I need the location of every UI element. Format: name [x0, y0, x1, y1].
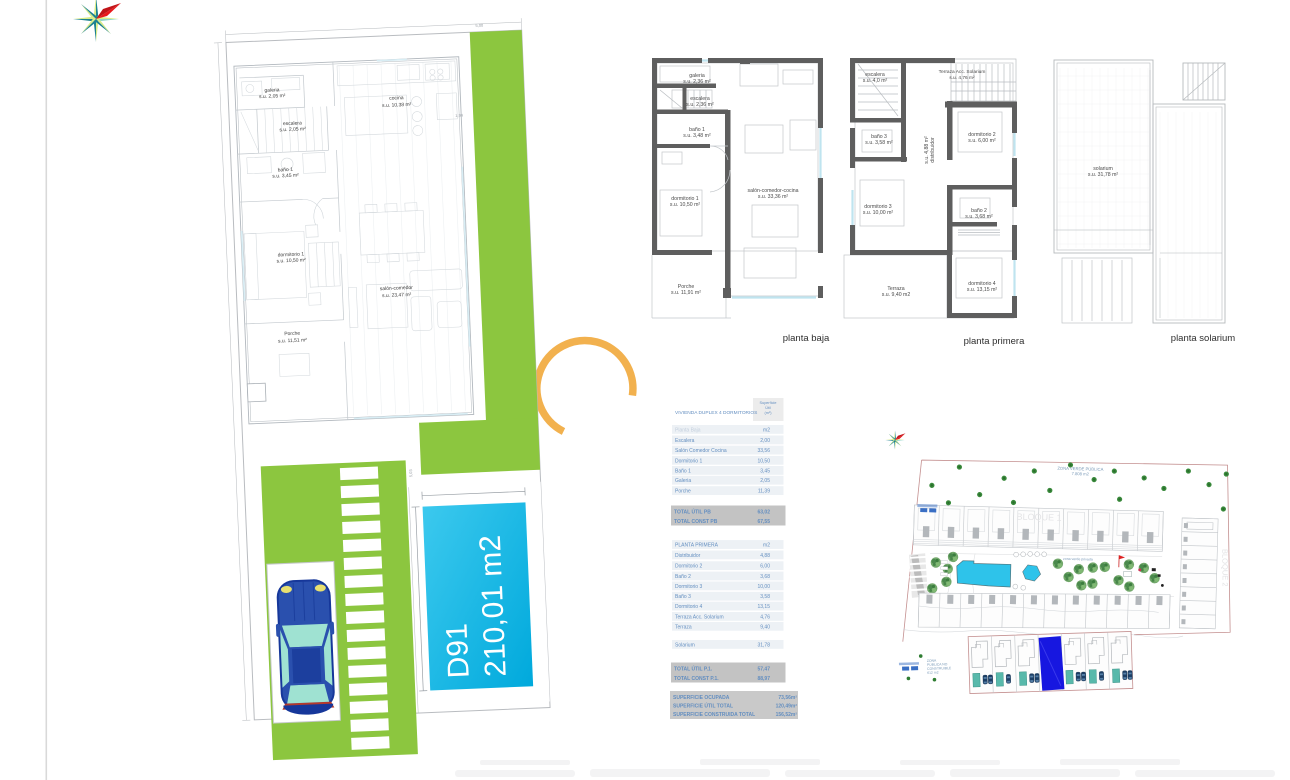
svg-text:zona verde privada: zona verde privada: [1063, 557, 1093, 562]
svg-text:s.u. 2,05 m²: s.u. 2,05 m²: [279, 126, 306, 133]
svg-text:4,76: 4,76: [760, 614, 770, 620]
svg-text:m2: m2: [763, 427, 770, 433]
svg-text:3,68: 3,68: [760, 574, 770, 580]
svg-text:BLOQUE 2: BLOQUE 2: [1220, 549, 1229, 587]
svg-text:s.u. 4,76 m²: s.u. 4,76 m²: [949, 75, 975, 81]
svg-text:88,97: 88,97: [757, 676, 770, 682]
svg-text:Dormitorio 3: Dormitorio 3: [675, 584, 702, 590]
svg-text:10,00: 10,00: [757, 584, 770, 590]
svg-text:s.u. 3,68 m²: s.u. 3,68 m²: [965, 214, 993, 220]
svg-text:67,55: 67,55: [757, 519, 770, 525]
svg-text:31,78: 31,78: [757, 642, 770, 648]
svg-text:33,56: 33,56: [757, 448, 770, 454]
svg-text:SUPERFICIE CONSTRUIDA TOTAL: SUPERFICIE CONSTRUIDA TOTAL: [673, 712, 755, 718]
svg-text:Terraza Acc. Solarium: Terraza Acc. Solarium: [675, 614, 724, 620]
svg-text:s.u. 2,36 m²: s.u. 2,36 m²: [683, 79, 711, 85]
svg-text:s.u. 9,40 m2: s.u. 9,40 m2: [882, 292, 911, 298]
svg-text:3,58: 3,58: [760, 594, 770, 600]
svg-text:Salón Comedor Cocina: Salón Comedor Cocina: [675, 448, 727, 454]
svg-text:s.u. 6,00 m²: s.u. 6,00 m²: [968, 138, 996, 144]
svg-text:m2: m2: [763, 543, 770, 549]
svg-text:1,94: 1,94: [455, 113, 464, 118]
svg-text:BLOQUE 1: BLOQUE 1: [1016, 512, 1061, 523]
svg-text:2,05: 2,05: [760, 478, 770, 484]
svg-text:Dormitorio 4: Dormitorio 4: [675, 604, 702, 610]
svg-text:s.u. 11,91 m²: s.u. 11,91 m²: [671, 290, 701, 296]
svg-text:s.u. 23,47 m²: s.u. 23,47 m²: [382, 292, 412, 299]
svg-text:120,49m²: 120,49m²: [776, 704, 798, 710]
svg-text:TOTAL CONST PB: TOTAL CONST PB: [674, 519, 718, 525]
svg-text:Dormitorio 1: Dormitorio 1: [675, 458, 702, 464]
svg-text:156,52m²: 156,52m²: [776, 712, 798, 718]
svg-text:Útil: Útil: [765, 405, 771, 410]
svg-text:planta solarium: planta solarium: [1171, 333, 1236, 344]
svg-text:s.u. 10,00 m²: s.u. 10,00 m²: [863, 210, 894, 216]
svg-text:Dormitorio 2: Dormitorio 2: [675, 564, 702, 570]
svg-text:Porche: Porche: [675, 489, 691, 495]
svg-text:9,40: 9,40: [760, 624, 770, 630]
svg-text:Galeria: Galeria: [675, 478, 691, 484]
svg-text:TOTAL ÚTIL P.1.: TOTAL ÚTIL P.1.: [674, 666, 713, 673]
svg-text:s.u. 4,0 m²: s.u. 4,0 m²: [863, 78, 888, 84]
svg-text:4,88: 4,88: [760, 553, 770, 559]
svg-text:VIVIENDA DUPLEX 4 DORMITORIOS: VIVIENDA DUPLEX 4 DORMITORIOS: [675, 410, 757, 416]
svg-text:13,15: 13,15: [757, 604, 770, 610]
svg-text:s.u. 10,50 m²: s.u. 10,50 m²: [276, 257, 306, 264]
svg-text:57,47: 57,47: [757, 667, 770, 673]
svg-text:73,56m²: 73,56m²: [778, 695, 797, 701]
svg-text:SUPERFICIE OCUPADA: SUPERFICIE OCUPADA: [673, 695, 730, 701]
svg-text:6,00: 6,00: [760, 564, 770, 570]
svg-text:s.u. 3,48 m²: s.u. 3,48 m²: [683, 133, 711, 139]
svg-text:Solarium: Solarium: [675, 642, 695, 648]
svg-text:Terraza Acc. Solarium: Terraza Acc. Solarium: [939, 69, 986, 75]
svg-text:s.u. 10,38 m²: s.u. 10,38 m²: [382, 102, 412, 109]
svg-text:210,01 m2: 210,01 m2: [474, 534, 513, 677]
svg-text:s.u. 2,05 m²: s.u. 2,05 m²: [259, 93, 286, 100]
svg-text:Baño 2: Baño 2: [675, 574, 691, 580]
svg-text:planta primera: planta primera: [964, 336, 1025, 347]
svg-text:planta baja: planta baja: [783, 333, 830, 344]
svg-text:PLANTA PRIMERA: PLANTA PRIMERA: [675, 543, 719, 549]
svg-text:s.u. 2,36 m²: s.u. 2,36 m²: [686, 102, 714, 108]
svg-text:10,50: 10,50: [757, 458, 770, 464]
svg-text:s.u. 3,58 m²: s.u. 3,58 m²: [865, 140, 893, 146]
svg-text:Planta Baja: Planta Baja: [675, 427, 701, 433]
svg-text:s.u. 31,78 m²: s.u. 31,78 m²: [1088, 172, 1119, 178]
svg-text:11,39: 11,39: [758, 489, 770, 495]
svg-text:3,45: 3,45: [760, 468, 770, 474]
svg-text:2,00: 2,00: [760, 438, 770, 444]
svg-text:(m²): (m²): [765, 411, 773, 415]
svg-text:5,00: 5,00: [475, 23, 484, 28]
svg-text:5,03: 5,03: [408, 468, 413, 477]
svg-text:Superficie: Superficie: [760, 401, 777, 405]
svg-text:TOTAL CONST P.1.: TOTAL CONST P.1.: [674, 676, 719, 682]
svg-text:Baño 1: Baño 1: [675, 468, 691, 474]
svg-text:s.u. 3,45 m²: s.u. 3,45 m²: [272, 173, 299, 180]
svg-text:D91: D91: [440, 623, 475, 679]
svg-text:s.u. 33,36 m²: s.u. 33,36 m²: [758, 194, 789, 200]
svg-text:s.u. 10,50 m²: s.u. 10,50 m²: [670, 202, 701, 208]
svg-text:Porche: Porche: [284, 331, 300, 338]
svg-text:7.808 m2: 7.808 m2: [1071, 471, 1089, 476]
svg-text:63,02: 63,02: [757, 510, 770, 516]
svg-text:Escalera: Escalera: [675, 438, 695, 444]
svg-text:612 m2: 612 m2: [927, 671, 939, 675]
svg-text:SUPERFICIE ÚTIL TOTAL: SUPERFICIE ÚTIL TOTAL: [673, 703, 733, 710]
svg-text:Distribuidor: Distribuidor: [675, 553, 701, 559]
svg-text:TOTAL ÚTIL PB: TOTAL ÚTIL PB: [674, 509, 711, 516]
svg-text:distribuidor: distribuidor: [930, 137, 936, 163]
svg-text:s.u. 11,51 m²: s.u. 11,51 m²: [278, 337, 307, 344]
svg-text:Terraza: Terraza: [675, 624, 692, 630]
svg-text:Baño 3: Baño 3: [675, 594, 691, 600]
svg-text:cocina: cocina: [389, 95, 404, 102]
svg-text:s.u. 13,15 m²: s.u. 13,15 m²: [967, 287, 998, 293]
